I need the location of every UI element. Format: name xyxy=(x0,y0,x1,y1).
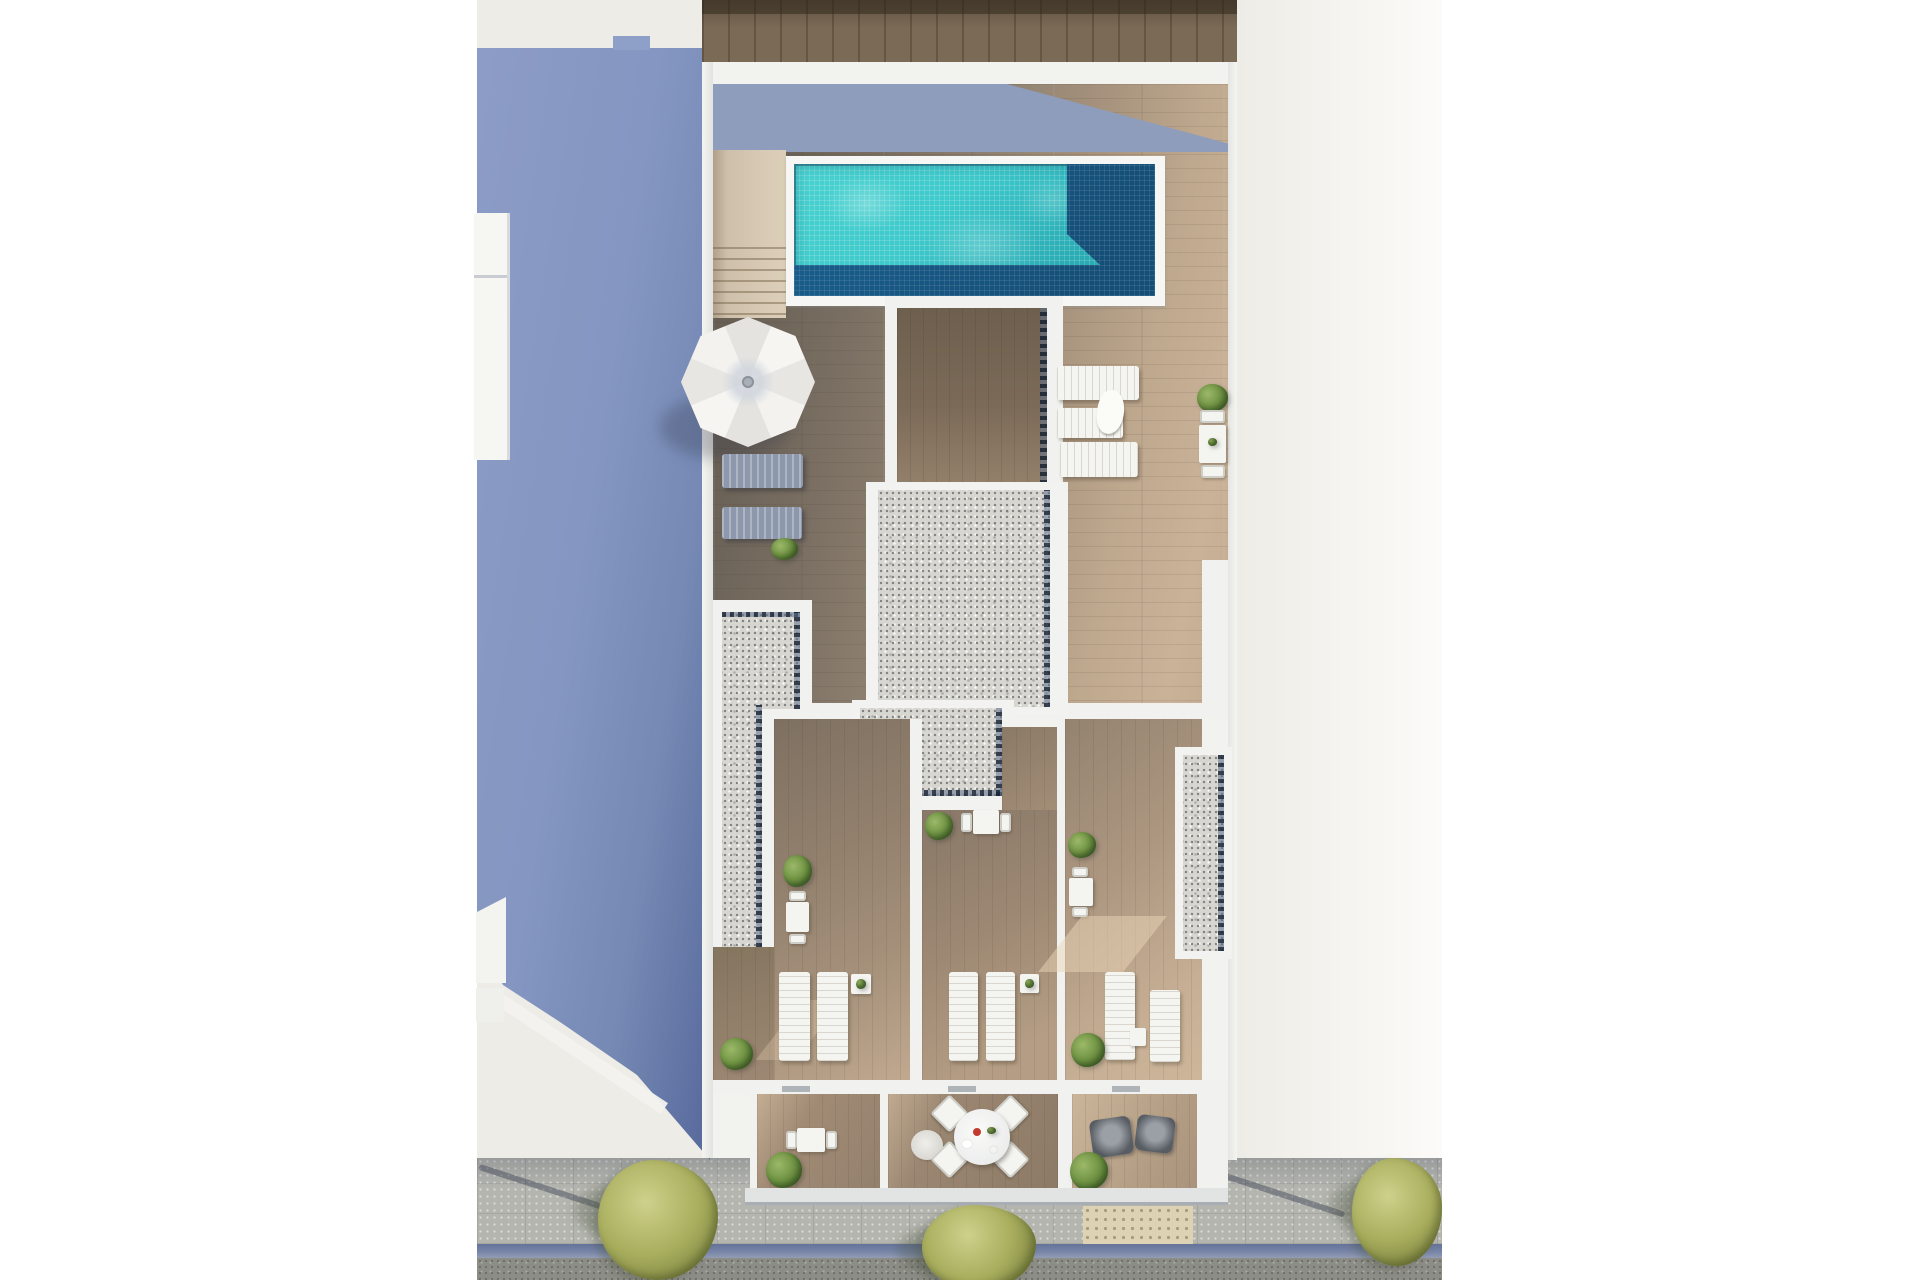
left-terrace-chair-s xyxy=(789,934,806,944)
middle-terrace-lounger-2 xyxy=(986,972,1015,1061)
terrace-divider-wall-2 xyxy=(1057,719,1065,1080)
building-right-wall xyxy=(1228,62,1237,1160)
left-terrace-lounger-1 xyxy=(779,972,810,1061)
left-balcony-box-small xyxy=(476,988,504,1022)
left-gravel-drain-narrow xyxy=(756,705,762,947)
right-planter-drain xyxy=(1218,755,1224,951)
bottom-facade-wall xyxy=(745,1188,1228,1205)
left-gravel-drain-top xyxy=(722,612,800,617)
middle-terrace-table xyxy=(973,810,999,834)
middle-terrace-arm xyxy=(1002,727,1057,810)
left-gravel-drain-wide xyxy=(794,612,800,709)
pool-deep-end xyxy=(794,164,1155,296)
building-left-wall xyxy=(702,62,713,1158)
deck-tableset-chair-n xyxy=(1200,410,1225,423)
ground-offwhite-right xyxy=(1237,0,1442,1163)
right-room-table xyxy=(1069,878,1093,906)
white-lounger-1 xyxy=(1057,366,1139,400)
terrace-divider-wall-1 xyxy=(910,719,922,1080)
left-balcony-box-upper xyxy=(474,213,510,460)
table-cup xyxy=(990,1146,997,1153)
parasol-pole xyxy=(742,376,754,388)
pool-stairs-side-shade xyxy=(713,150,727,318)
table-plate-red xyxy=(973,1128,981,1136)
gray-lounger-1 xyxy=(722,454,803,488)
left-terrace-lounger-2 xyxy=(817,972,848,1061)
patio-divider-wall-1 xyxy=(880,1094,888,1190)
door-threshold-1 xyxy=(782,1086,810,1092)
gravel-roof-upper xyxy=(878,490,1050,707)
neighbour-shadow-step xyxy=(613,36,650,50)
white-lounger-3 xyxy=(1060,442,1138,477)
middle-terrace-chair-e xyxy=(1000,813,1011,832)
deck-tableset-chair-s xyxy=(1201,465,1225,478)
middle-patio-round-table xyxy=(954,1109,1010,1165)
left-patio-table xyxy=(797,1128,825,1152)
top-wood-band-dark-edge xyxy=(702,0,1237,14)
right-room-lounger-1 xyxy=(1105,972,1135,1060)
door-threshold-3 xyxy=(1112,1086,1140,1092)
middle-terrace-chair-w xyxy=(961,813,972,832)
table-plate-white xyxy=(962,1140,972,1148)
left-patio-chair-e xyxy=(826,1131,837,1149)
left-patio-wall-left xyxy=(750,1094,757,1190)
aerial-render-stage xyxy=(0,0,1920,1280)
pool-water xyxy=(794,164,1155,296)
right-room-lounger-2 xyxy=(1150,990,1180,1062)
right-patio-wall-right xyxy=(1197,1080,1228,1190)
right-room-sidetable xyxy=(1130,1028,1146,1046)
courtyard-wood-floor xyxy=(897,308,1047,484)
deck-plant-pot xyxy=(771,538,798,560)
deck-tableset-plant xyxy=(1208,438,1217,446)
right-patio-armchair-2 xyxy=(1134,1114,1176,1154)
left-terrace-chair-n xyxy=(789,891,806,901)
table-plant-green xyxy=(987,1127,996,1134)
right-room-chair-n xyxy=(1072,867,1088,877)
left-terrace-table xyxy=(786,902,809,932)
right-wing-wall xyxy=(1202,560,1228,705)
gravel-roof-upper-drain xyxy=(1044,490,1050,707)
street-tree-middle xyxy=(922,1205,1036,1280)
middle-terrace-sidetable-plant xyxy=(1025,979,1034,988)
door-threshold-2 xyxy=(948,1086,976,1092)
gray-lounger-2 xyxy=(722,507,802,539)
courtyard-drain-line xyxy=(1040,308,1047,484)
left-patio-chair-w xyxy=(786,1131,797,1149)
left-balcony-divider xyxy=(474,275,507,278)
tactile-paving-strip xyxy=(1083,1206,1193,1244)
middle-terrace-lounger-1 xyxy=(949,972,978,1061)
